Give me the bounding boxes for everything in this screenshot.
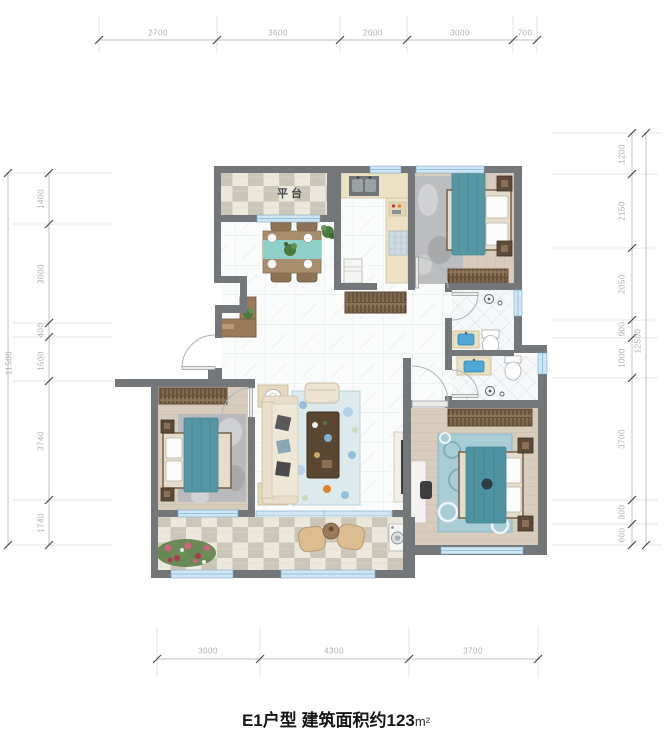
floorplan-svg <box>0 0 672 747</box>
plan-title-main: E1户型 建筑面积约123 <box>242 711 415 730</box>
dim-bottom-0: 3000 <box>198 647 218 656</box>
plan-title-unit: m² <box>415 714 430 729</box>
dim-bottom-2: 3700 <box>463 647 483 656</box>
dim-right-5: 3700 <box>618 429 627 449</box>
dim-left-1: 3000 <box>37 264 46 284</box>
dim-left-0: 1400 <box>37 189 46 209</box>
plan-title: E1户型 建筑面积约123m² <box>242 706 430 731</box>
dim-right-7: 600 <box>618 528 627 543</box>
dim-right-4: 1000 <box>618 348 627 368</box>
bedroom-topright <box>415 170 512 286</box>
dim-right-2: 2050 <box>618 274 627 294</box>
dim-top-4: 700 <box>518 29 533 38</box>
dim-left-3: 1500 <box>37 351 46 371</box>
floorplan-canvas: 平台 2700 3600 2000 3000 700 3000 4300 370… <box>0 0 672 747</box>
dim-top-1: 3600 <box>268 29 288 38</box>
dim-top-3: 3000 <box>450 29 470 38</box>
hall-sideboard <box>345 292 406 313</box>
dim-top-2: 2000 <box>363 29 383 38</box>
balcony-label: 平台 <box>277 185 305 201</box>
dim-left-2: 400 <box>37 323 46 338</box>
dim-bottom-1: 4300 <box>324 647 344 656</box>
dim-right-0: 1200 <box>618 144 627 164</box>
dim-top-0: 2700 <box>148 29 168 38</box>
sliding-door <box>256 511 392 516</box>
dim-right-3: 900 <box>618 322 627 337</box>
dim-left-4: 3740 <box>37 431 46 451</box>
dim-left-5: 1740 <box>37 513 46 533</box>
dim-left-total: 11580 <box>5 351 14 375</box>
dim-right-6: 900 <box>618 505 627 520</box>
dim-right-total: 12500 <box>634 329 643 354</box>
dim-right-1: 2150 <box>618 201 627 221</box>
